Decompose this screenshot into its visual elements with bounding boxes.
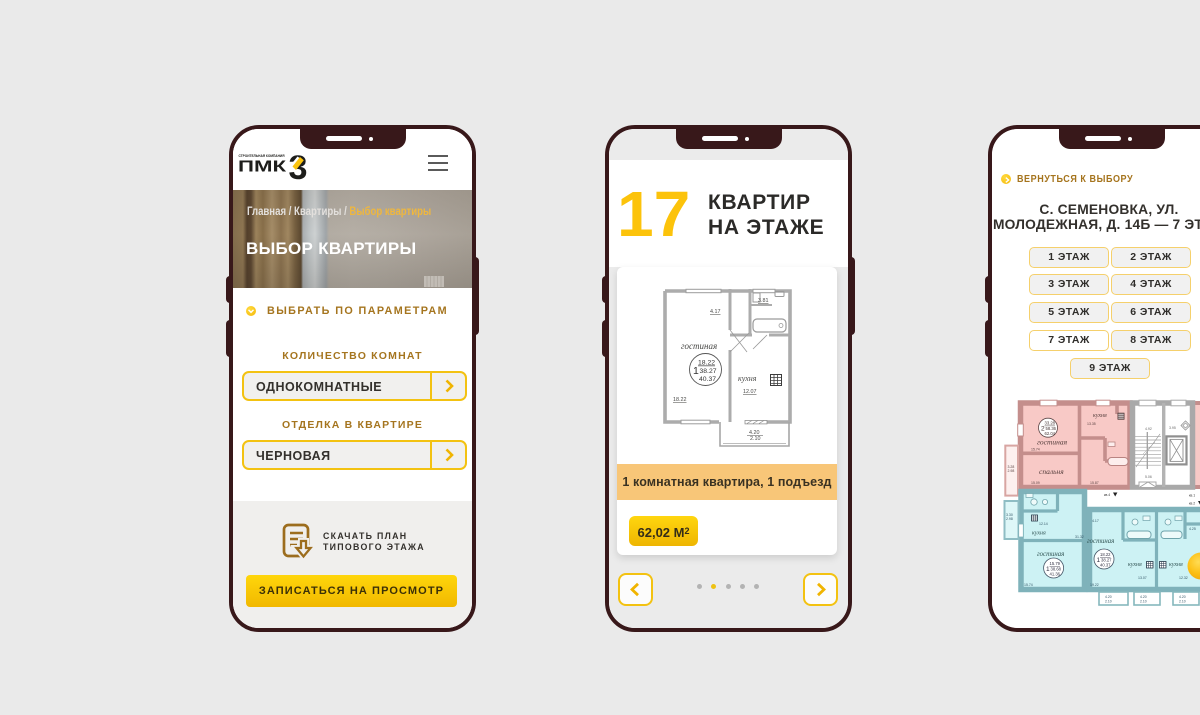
svg-text:кухня: кухня xyxy=(738,374,757,383)
svg-text:2.98: 2.98 xyxy=(1008,469,1015,473)
svg-text:кв.2: кв.2 xyxy=(1189,501,1195,505)
svg-text:4.25: 4.25 xyxy=(1189,527,1196,531)
svg-text:31.32: 31.32 xyxy=(1075,535,1084,539)
svg-text:3.81: 3.81 xyxy=(758,298,769,304)
svg-text:кв.1: кв.1 xyxy=(1189,493,1195,497)
svg-text:38.27: 38.27 xyxy=(700,368,717,375)
svg-text:кухня: кухня xyxy=(1169,562,1183,568)
svg-text:15.74: 15.74 xyxy=(1024,583,1033,587)
svg-text:гостиная: гостиная xyxy=(1037,437,1068,446)
svg-text:40.37: 40.37 xyxy=(699,376,716,383)
svg-text:4.20: 4.20 xyxy=(1105,595,1112,599)
svg-text:гостиная: гостиная xyxy=(681,341,717,351)
svg-text:15.09: 15.09 xyxy=(1031,481,1040,485)
svg-text:кухня: кухня xyxy=(1093,413,1107,419)
svg-text:40.37: 40.37 xyxy=(1100,562,1111,567)
svg-text:5.06: 5.06 xyxy=(1145,475,1152,479)
svg-text:18.22: 18.22 xyxy=(698,360,715,367)
svg-text:15.79: 15.79 xyxy=(1050,561,1061,566)
svg-text:12.07: 12.07 xyxy=(743,389,757,395)
svg-text:19.22: 19.22 xyxy=(1090,583,1099,587)
svg-text:12.32: 12.32 xyxy=(1179,576,1188,580)
svg-text:15.87: 15.87 xyxy=(1090,481,1099,485)
svg-text:2.10: 2.10 xyxy=(1140,599,1147,603)
svg-text:4.92: 4.92 xyxy=(1145,427,1152,431)
svg-text:кв.4: кв.4 xyxy=(1104,493,1110,497)
svg-text:41.36: 41.36 xyxy=(1050,571,1061,576)
svg-text:2.10: 2.10 xyxy=(1179,599,1186,603)
svg-text:2.10: 2.10 xyxy=(1105,599,1112,603)
svg-text:4.20: 4.20 xyxy=(1140,595,1147,599)
svg-text:кухня: кухня xyxy=(1128,562,1142,568)
svg-text:4.17: 4.17 xyxy=(1092,519,1099,523)
svg-text:15.74: 15.74 xyxy=(1031,447,1040,451)
svg-text:13.07: 13.07 xyxy=(1138,576,1147,580)
svg-text:4.17: 4.17 xyxy=(710,309,721,315)
svg-text:гостиная: гостиная xyxy=(1087,538,1114,545)
svg-text:18.22: 18.22 xyxy=(673,397,687,403)
svg-text:кухня: кухня xyxy=(1032,530,1046,536)
svg-text:62.04: 62.04 xyxy=(1045,431,1056,436)
svg-text:2.98: 2.98 xyxy=(1006,517,1013,521)
svg-text:4.20: 4.20 xyxy=(1179,595,1186,599)
svg-text:18.22: 18.22 xyxy=(1100,552,1111,557)
svg-text:2.10: 2.10 xyxy=(750,436,761,442)
svg-text:13.35: 13.35 xyxy=(1087,422,1096,426)
svg-text:спальня: спальня xyxy=(1039,467,1064,476)
svg-text:ПМК: ПМК xyxy=(238,158,287,175)
svg-text:3.95: 3.95 xyxy=(1169,426,1176,430)
svg-text:33.28: 33.28 xyxy=(1045,420,1056,425)
svg-text:гостиная: гостиная xyxy=(1037,551,1064,558)
svg-text:12.14: 12.14 xyxy=(1039,522,1048,526)
